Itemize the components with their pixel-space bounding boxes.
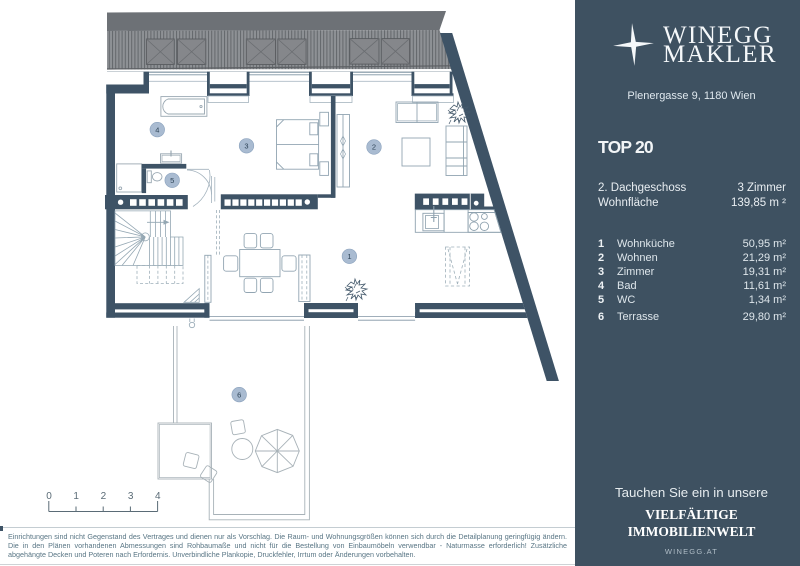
svg-text:0: 0 (46, 491, 52, 502)
svg-text:4: 4 (155, 125, 159, 134)
svg-text:5: 5 (170, 176, 174, 185)
svg-text:4: 4 (155, 491, 161, 502)
svg-text:2: 2 (101, 491, 107, 502)
svg-text:2: 2 (372, 143, 376, 152)
svg-text:6: 6 (237, 390, 241, 399)
svg-text:1: 1 (73, 491, 79, 502)
svg-text:3: 3 (128, 491, 134, 502)
svg-text:3: 3 (244, 142, 248, 151)
svg-text:1: 1 (347, 252, 351, 261)
